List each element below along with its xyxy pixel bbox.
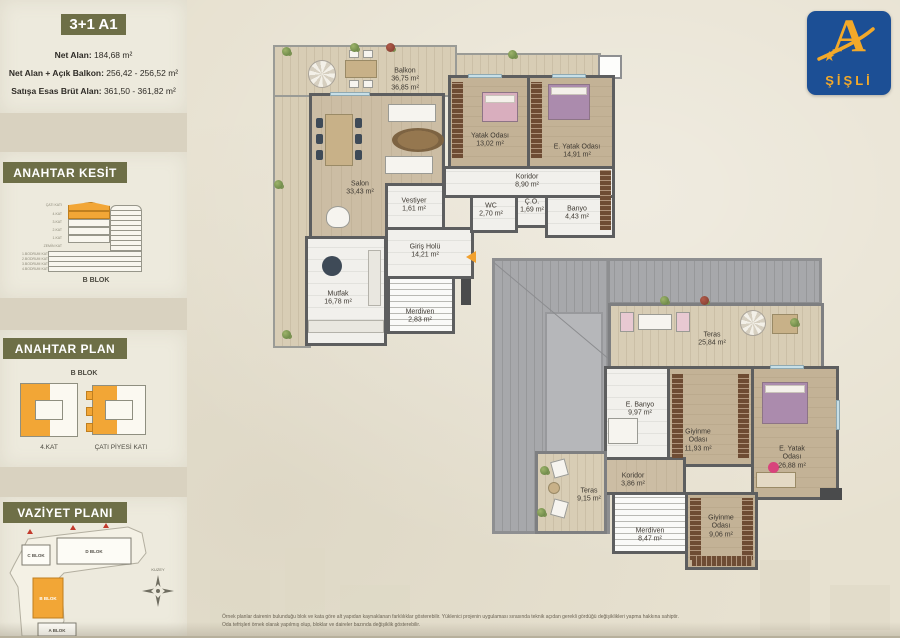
room-area: 2,83 m² [381, 317, 459, 325]
room-name: Banyo [538, 206, 616, 214]
plant [790, 318, 799, 327]
section-floor [68, 219, 110, 227]
room-area: 36,75 m² [366, 76, 444, 84]
compass-north-label: KUZEY [151, 567, 165, 572]
roof-inset [545, 312, 603, 454]
room-area: 11,93 m² [675, 445, 721, 453]
room-area: 9,15 m² [550, 496, 628, 504]
floor-label: 2.KAT [53, 228, 62, 232]
room-area: 9,97 m² [601, 410, 679, 418]
wardrobe [738, 374, 749, 458]
room-area: 25,84 m² [673, 340, 751, 348]
spec-label: Net Alan + Açık Balkon: [9, 68, 106, 78]
site-plan: C BLOK D BLOK B BLOK A BLOK KUZEY [0, 523, 187, 636]
sisli-logo: A ★ ŞİŞLİ [807, 11, 891, 95]
mini-core [35, 400, 63, 420]
plan-block-label: B BLOK [20, 370, 148, 377]
plant [282, 47, 291, 56]
room-area: 26,88 m² [769, 462, 815, 470]
plant [350, 43, 359, 52]
terrace-sofa [638, 314, 672, 330]
chair [316, 150, 323, 160]
window [836, 400, 840, 430]
bed [762, 382, 808, 424]
room-label-vestiyer: Vestiyer 1,61 m² [375, 198, 453, 215]
room-label-giyinme-2: Giyinme Odası 9,06 m² [698, 514, 744, 539]
bed [548, 84, 590, 120]
wardrobe [692, 556, 752, 566]
mini-plan-4kat [20, 383, 78, 437]
umbrella [308, 60, 336, 88]
room-name: Giyinme Odası [698, 514, 744, 531]
sidebar: 3+1 A1 Net Alan: 184,68 m² Net Alan + Aç… [0, 0, 187, 636]
chair [355, 118, 362, 128]
room-name: Teras [550, 488, 628, 496]
room-area: 8,47 m² [611, 536, 689, 544]
mini-tab [86, 407, 93, 416]
anahtar-kesit-title: ANAHTAR KESİT [3, 162, 127, 183]
kitchen-counter [308, 320, 384, 333]
logo-text: ŞİŞLİ [807, 73, 891, 88]
spec-value: 184,68 m² [94, 50, 132, 60]
room-label-salon: Salon 33,43 m² [321, 181, 399, 198]
highlighted-roof-floor [68, 202, 110, 211]
terrace-lounge-chair [676, 312, 690, 332]
caption-cati-piyesi: ÇATI PİYESİ KATI [78, 444, 164, 451]
terrace-lounge-chair [620, 312, 634, 332]
dining-table [325, 114, 353, 166]
bed [482, 92, 518, 122]
floor-label: 4.BODRUM KAT [22, 267, 48, 271]
footnote-line-2: Oda tefrişleri örnek olarak yapılmış olu… [222, 622, 782, 630]
pillow [551, 87, 587, 95]
room-label-balkon: Balkon 36,75 m² 36,85 m² [366, 67, 444, 92]
wall-jamb [820, 488, 842, 500]
room-area: 1,61 m² [375, 206, 453, 214]
room-area: 33,43 m² [321, 189, 399, 197]
room-label-e-banyo: E. Banyo 9,97 m² [601, 402, 679, 419]
plant [386, 43, 395, 52]
room-label-mutfak: Mutfak 16,78 m² [299, 291, 377, 308]
floor-label: 3.BODRUM KAT [22, 262, 48, 266]
kitchen-table [322, 256, 342, 276]
floor-label: 1.BODRUM KAT [22, 252, 48, 256]
room-name: Koridor [594, 473, 672, 481]
block-b-label: B BLOK [39, 596, 57, 601]
anahtar-kesit-card: ANAHTAR KESİT ÇATI KATI 4.KAT 3.KAT 2.KA… [0, 152, 187, 298]
anahtar-plan-title: ANAHTAR PLAN [3, 338, 127, 359]
brochure-page: 3+1 A1 Net Alan: 184,68 m² Net Alan + Aç… [0, 0, 900, 638]
room-label-giris-holu: Giriş Holü 14,21 m² [402, 244, 448, 261]
compass-rose-icon: KUZEY [142, 567, 174, 607]
section-right-tower [110, 205, 142, 251]
plant [508, 50, 517, 59]
map-pin-icon [27, 529, 33, 534]
room-area: 14,91 m² [538, 152, 616, 160]
footnote-line-1: Örnek planlar dairenin bulunduğu blok ve… [222, 614, 782, 622]
room-label-merdiven-lower: Merdiven 8,47 m² [611, 528, 689, 545]
room-name: Giyinme Odası [675, 428, 721, 445]
section-floor [68, 235, 110, 243]
spec-label: Net Alan: [55, 50, 94, 60]
spec-brut-alan: Satışa Esas Brüt Alan: 361,50 - 361,82 m… [0, 86, 187, 96]
window [552, 74, 586, 78]
unit-title: 3+1 A1 [61, 14, 126, 35]
spec-value: 256,42 - 256,52 m² [106, 68, 178, 78]
entrance-arrow-icon [466, 251, 476, 263]
plant [660, 296, 669, 305]
room-area-alt: 36,85 m² [366, 84, 444, 92]
mini-plan-cati [92, 385, 146, 435]
floor-label: ZEMİN KAT [44, 244, 62, 248]
mini-tab [86, 391, 93, 400]
room-area: 8,90 m² [488, 182, 566, 190]
section-floor [68, 227, 110, 235]
plant [700, 296, 709, 305]
room-label-e-yatak-lower: E. Yatak Odası 26,88 m² [769, 445, 815, 470]
pillow [485, 95, 515, 103]
room-name: Mutfak [299, 291, 377, 299]
spec-net-balkon: Net Alan + Açık Balkon: 256,42 - 256,52 … [0, 68, 187, 78]
pillow [765, 385, 805, 393]
room-name: Giriş Holü [402, 244, 448, 252]
map-pin-icon [103, 523, 109, 528]
room-name: Teras [673, 332, 751, 340]
room-label-banyo: Banyo 4,43 m² [538, 206, 616, 223]
skyline-watermark [830, 585, 890, 630]
vaziyet-plani-title: VAZİYET PLANI [3, 502, 127, 523]
room-name: Merdiven [611, 528, 689, 536]
room-name: E. Yatak Odası [769, 445, 815, 462]
window [770, 365, 804, 369]
rug [392, 128, 444, 152]
room-label-e-yatak-odasi: E. Yatak Odası 14,91 m² [538, 144, 616, 161]
anahtar-plan-card: ANAHTAR PLAN B BLOK 4.KAT ÇATI PİYESİ KA… [0, 330, 187, 467]
floor-label: 2.BODRUM KAT [22, 257, 48, 261]
chair [355, 150, 362, 160]
room-area: 9,06 m² [698, 531, 744, 539]
plant [282, 330, 291, 339]
room-label-giyinme-1: Giyinme Odası 11,93 m² [675, 428, 721, 453]
wall-jamb [461, 279, 471, 305]
window [330, 92, 370, 96]
room-label-teras-small: Teras 9,15 m² [550, 488, 628, 505]
block-c-label: C BLOK [27, 553, 45, 558]
room-label-koridor-upper: Koridor 8,90 m² [488, 174, 566, 191]
window [468, 74, 502, 78]
room-name: E. Banyo [601, 402, 679, 410]
room-label-merdiven-upper: Merdiven 2,83 m² [381, 309, 459, 326]
block-d-label: D BLOK [85, 549, 103, 554]
room-name: Vestiyer [375, 198, 453, 206]
mini-tab [86, 423, 93, 432]
spec-net-alan: Net Alan: 184,68 m² [0, 50, 187, 60]
plant [274, 180, 283, 189]
room-name: Salon [321, 181, 399, 189]
desk [756, 472, 796, 488]
room-label-yatak-odasi: Yatak Odası 13,02 m² [451, 133, 529, 150]
chair [355, 134, 362, 144]
floor-label: 3.KAT [53, 220, 62, 224]
room-label-teras-big: Teras 25,84 m² [673, 332, 751, 349]
room-area: 4,43 m² [538, 214, 616, 222]
vaziyet-plani-card: VAZİYET PLANI C BLOK D BLOK B BLOK A BLO… [0, 497, 187, 636]
chair [349, 80, 359, 88]
spec-label: Satışa Esas Brüt Alan: [11, 86, 104, 96]
sofa [385, 156, 433, 174]
mini-core [105, 400, 133, 420]
room-area: 16,78 m² [299, 299, 377, 307]
block-a-label: A BLOK [48, 628, 66, 633]
caption-4kat: 4.KAT [20, 444, 78, 451]
plant [540, 466, 549, 475]
room-area: 14,21 m² [402, 252, 448, 260]
room-name: Koridor [488, 174, 566, 182]
floor-label: 1.KAT [53, 236, 62, 240]
bathtub [608, 418, 638, 444]
room-name: E. Yatak Odası [538, 144, 616, 152]
sofa [388, 104, 436, 122]
kesit-block-label: B BLOK [38, 277, 154, 284]
room-area: 13,02 m² [451, 141, 529, 149]
plant [537, 508, 546, 517]
chair [316, 134, 323, 144]
spec-value: 361,50 - 361,82 m² [104, 86, 176, 96]
floor-label: 4.KAT [53, 212, 62, 216]
room-name: Balkon [366, 67, 444, 75]
chair [363, 50, 373, 58]
section-base [48, 251, 142, 272]
room-name: Merdiven [381, 309, 459, 317]
room-name: Yatak Odası [451, 133, 529, 141]
highlighted-floor [68, 211, 110, 219]
building-section-diagram: ÇATI KATI 4.KAT 3.KAT 2.KAT 1.KAT ZEMİN … [38, 202, 154, 274]
floor-label: ÇATI KATI [46, 203, 62, 207]
chair [316, 118, 323, 128]
header-card: 3+1 A1 Net Alan: 184,68 m² Net Alan + Aç… [0, 0, 187, 113]
armchair [326, 206, 350, 228]
map-pin-icon [70, 525, 76, 530]
